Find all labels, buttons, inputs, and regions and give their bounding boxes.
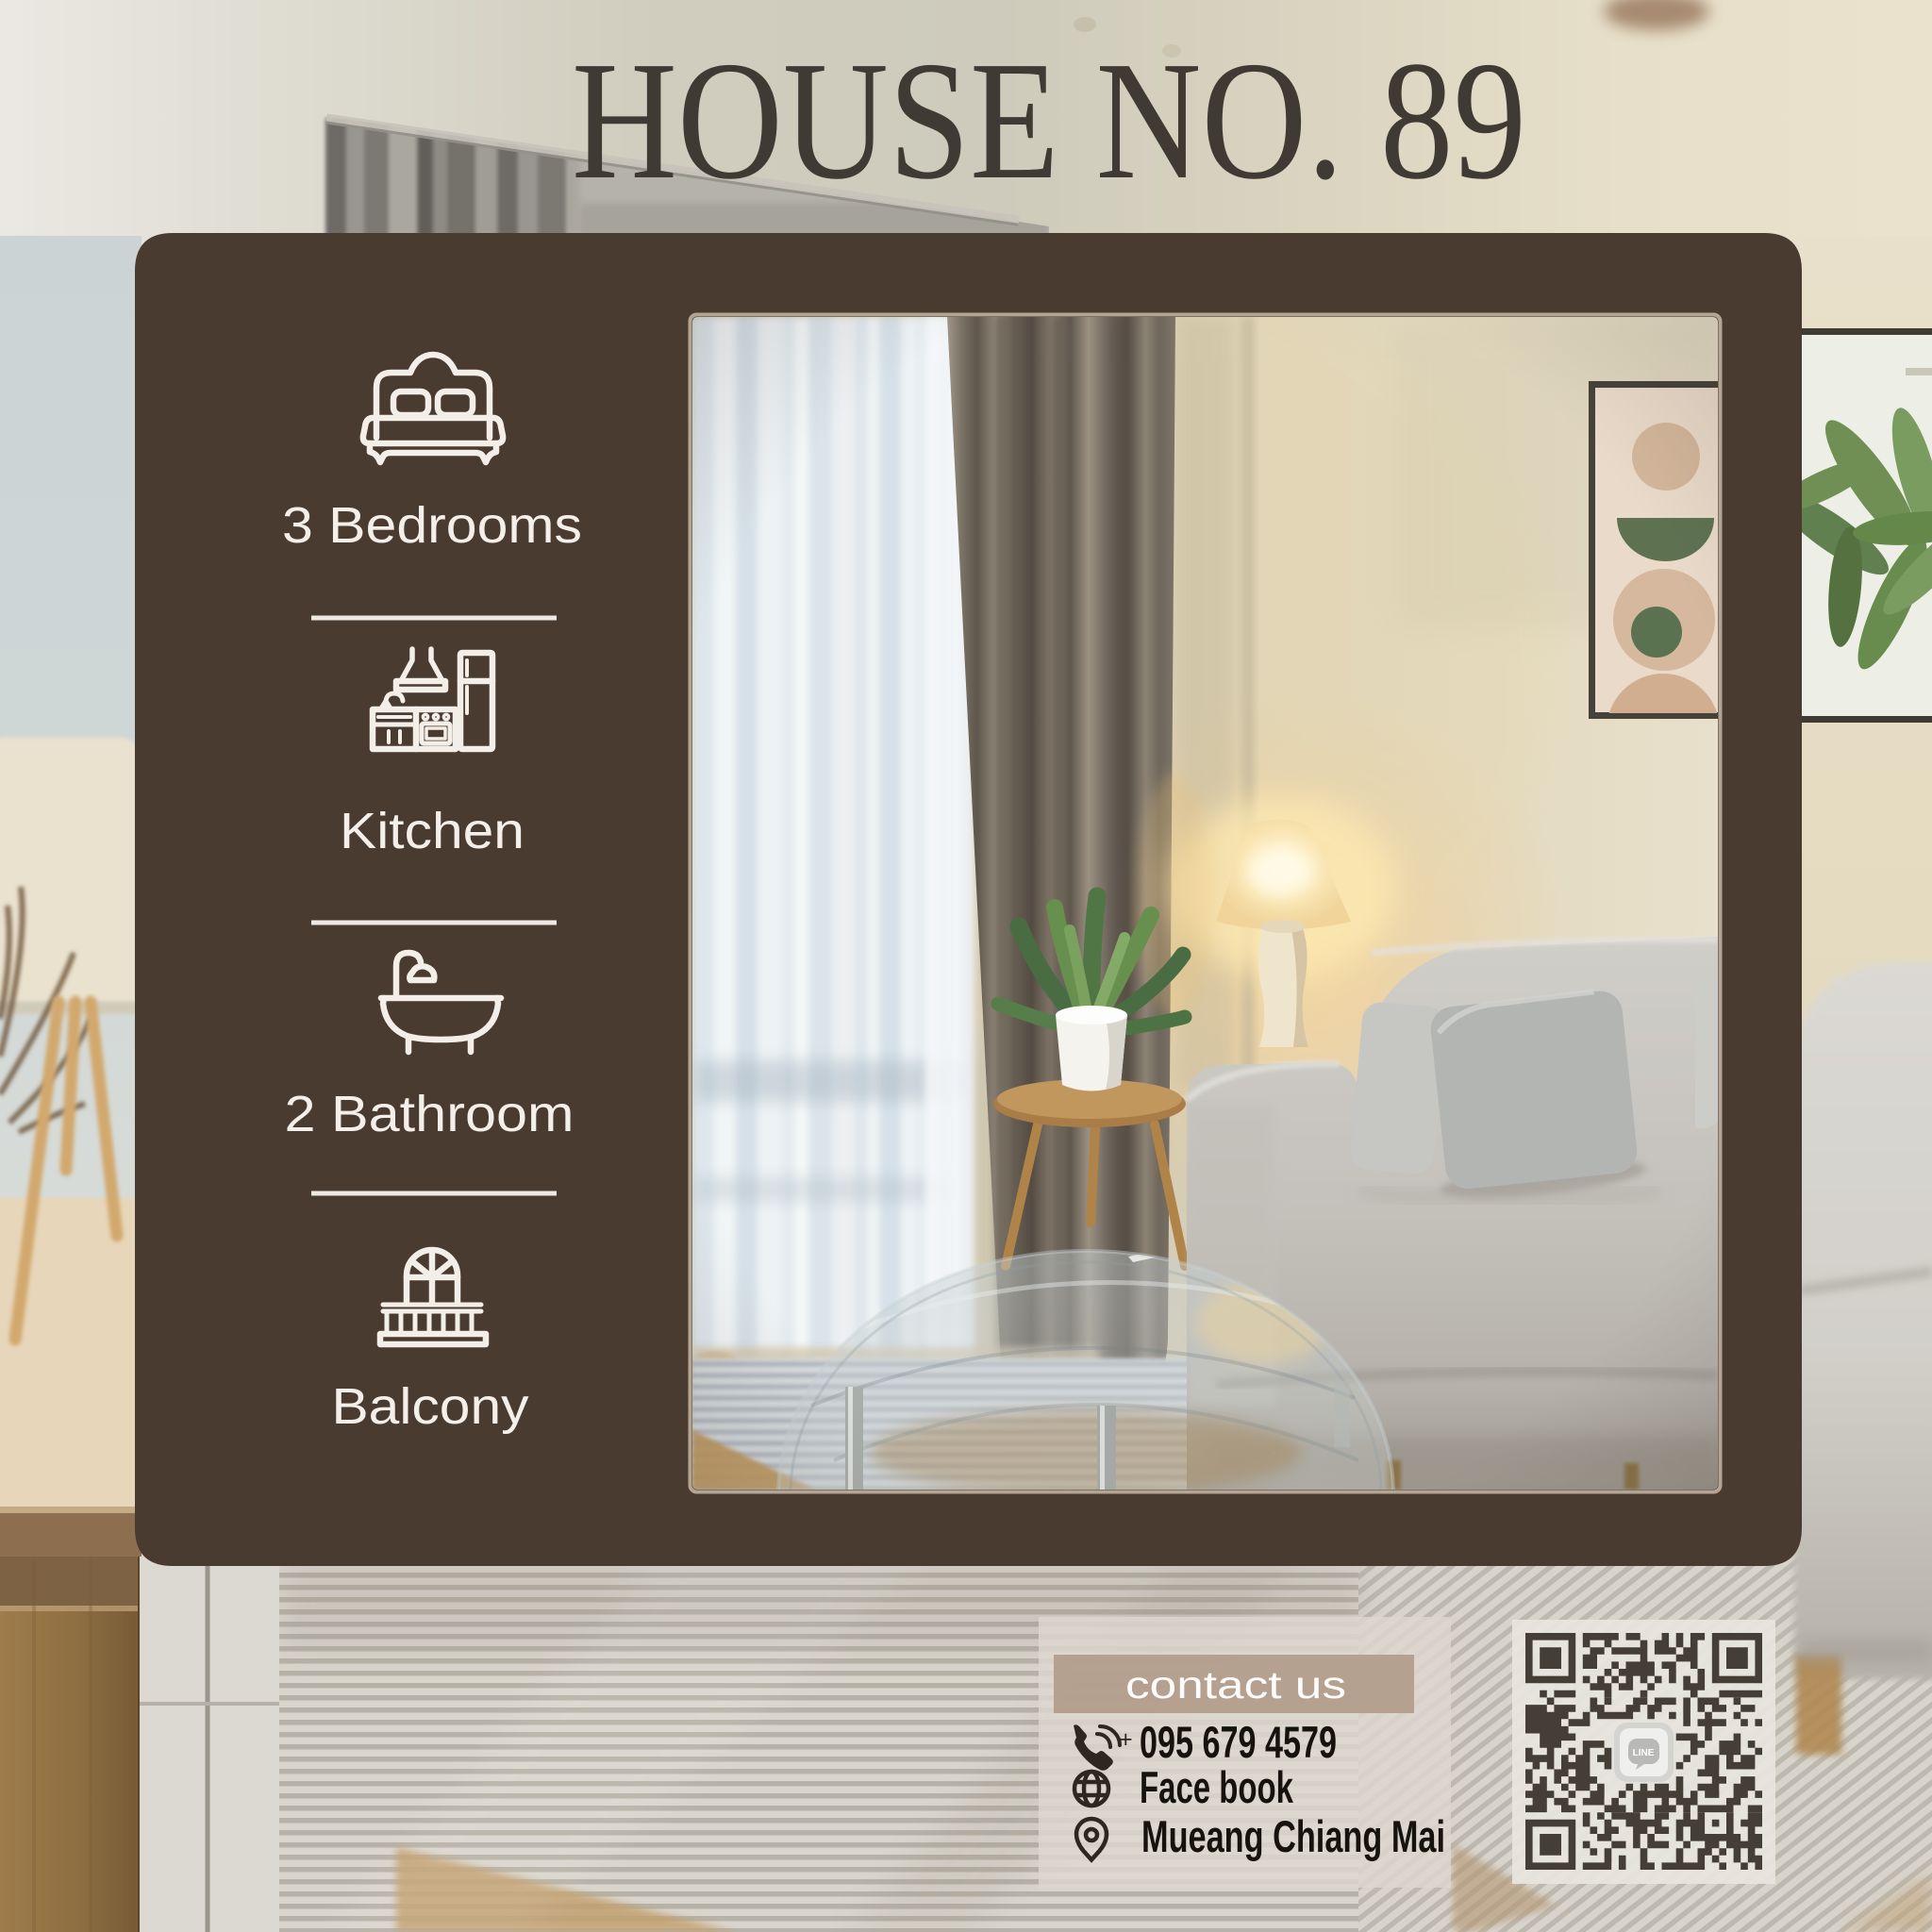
- svg-text:2 Bathroom: 2 Bathroom: [285, 1086, 575, 1142]
- svg-text:contact us: contact us: [1125, 1663, 1346, 1707]
- svg-text:3 Bedrooms: 3 Bedrooms: [282, 497, 582, 554]
- svg-text:Face book: Face book: [1140, 1762, 1294, 1812]
- svg-text:+: +: [1119, 1726, 1133, 1753]
- svg-text:Kitchen: Kitchen: [340, 803, 525, 859]
- svg-text:095 679 4579: 095 679 4579: [1140, 1717, 1337, 1767]
- svg-text:Mueang Chiang Mai: Mueang Chiang Mai: [1141, 1811, 1445, 1861]
- svg-text:LINE: LINE: [1633, 1748, 1655, 1758]
- svg-text:Balcony: Balcony: [332, 1378, 529, 1435]
- svg-text:HOUSE NO. 89: HOUSE NO. 89: [572, 26, 1526, 214]
